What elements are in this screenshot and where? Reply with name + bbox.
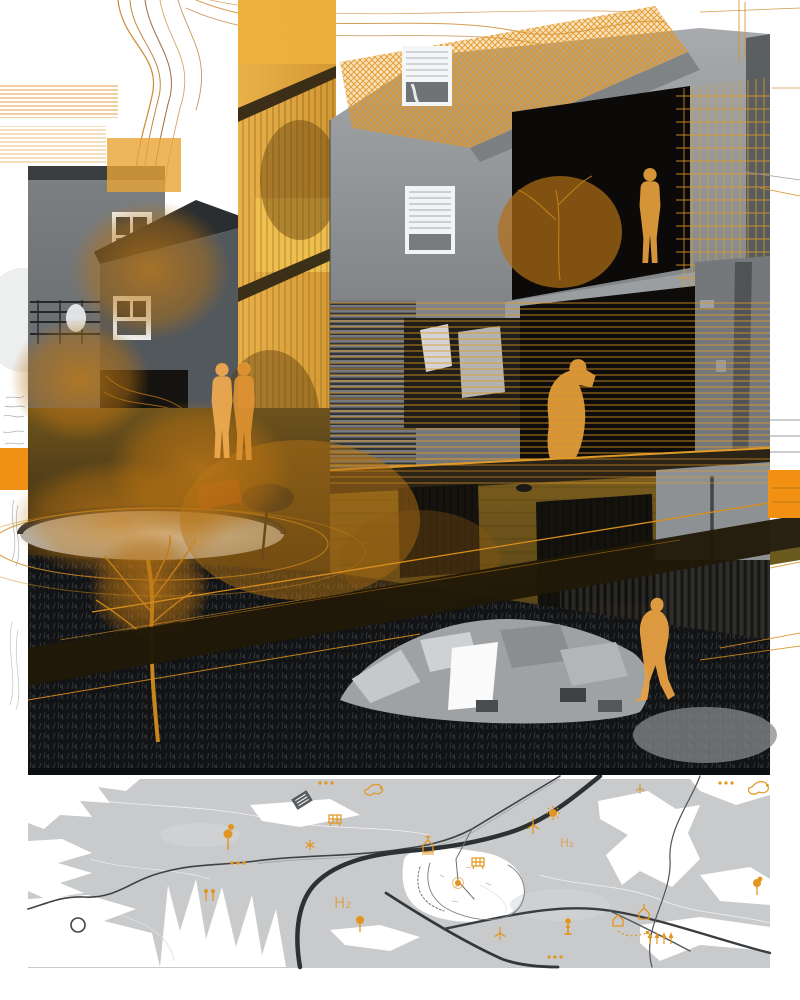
photo-bottom-edge: [28, 768, 770, 775]
three-dots-icon: [718, 781, 733, 784]
white-board: [448, 642, 498, 710]
collage-artwork: [0, 0, 800, 775]
right-orange-band: [768, 470, 800, 518]
left-orange-band: [0, 448, 28, 490]
three-dots-icon: [318, 781, 333, 784]
shuttered-window-mid: [405, 186, 455, 254]
orange-block: [107, 138, 181, 192]
three-dots-icon: [547, 955, 562, 958]
shuttered-window-top: [402, 46, 452, 106]
h2-label-east: H₂: [560, 836, 574, 850]
map-terrain: [28, 779, 770, 968]
site-map: H₂ H₂: [0, 775, 800, 1000]
h2-label-west: H₂: [334, 894, 351, 912]
architectural-collage-page: H₂ H₂: [0, 0, 800, 1000]
three-dots-icon: [230, 861, 245, 864]
